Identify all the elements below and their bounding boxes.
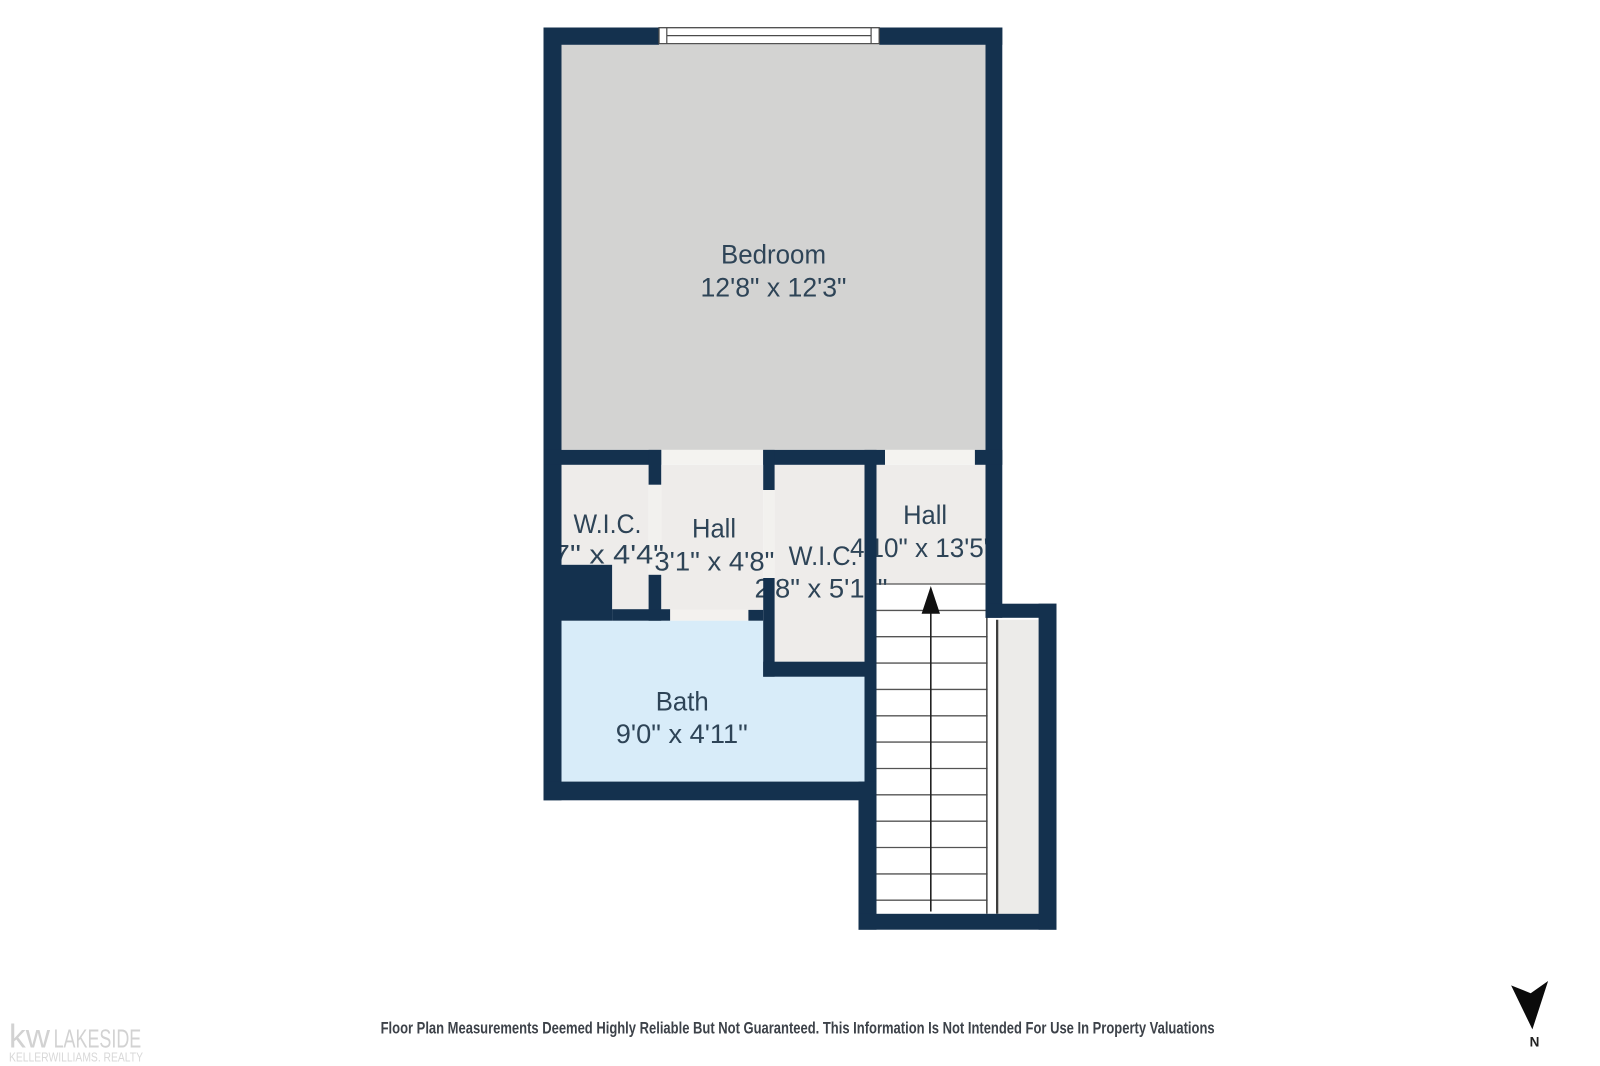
svg-text:3'1" x 4'8": 3'1" x 4'8" <box>654 547 774 577</box>
svg-text:Floor Plan Measurements Deemed: Floor Plan Measurements Deemed Highly Re… <box>381 1019 1215 1037</box>
svg-text:W.I.C.: W.I.C. <box>789 541 858 571</box>
svg-text:12'8" x 12'3": 12'8" x 12'3" <box>701 273 847 303</box>
svg-text:KELLERWILLIAMS. REALTY: KELLERWILLIAMS. REALTY <box>9 1049 143 1064</box>
svg-text:Bedroom: Bedroom <box>721 240 826 270</box>
svg-text:Hall: Hall <box>903 500 947 530</box>
svg-text:N: N <box>1530 1034 1540 1049</box>
svg-text:Hall: Hall <box>692 514 736 544</box>
svg-text:W.I.C.: W.I.C. <box>574 509 642 539</box>
svg-text:Bath: Bath <box>656 687 709 717</box>
svg-text:9'0" x 4'11": 9'0" x 4'11" <box>616 719 748 749</box>
